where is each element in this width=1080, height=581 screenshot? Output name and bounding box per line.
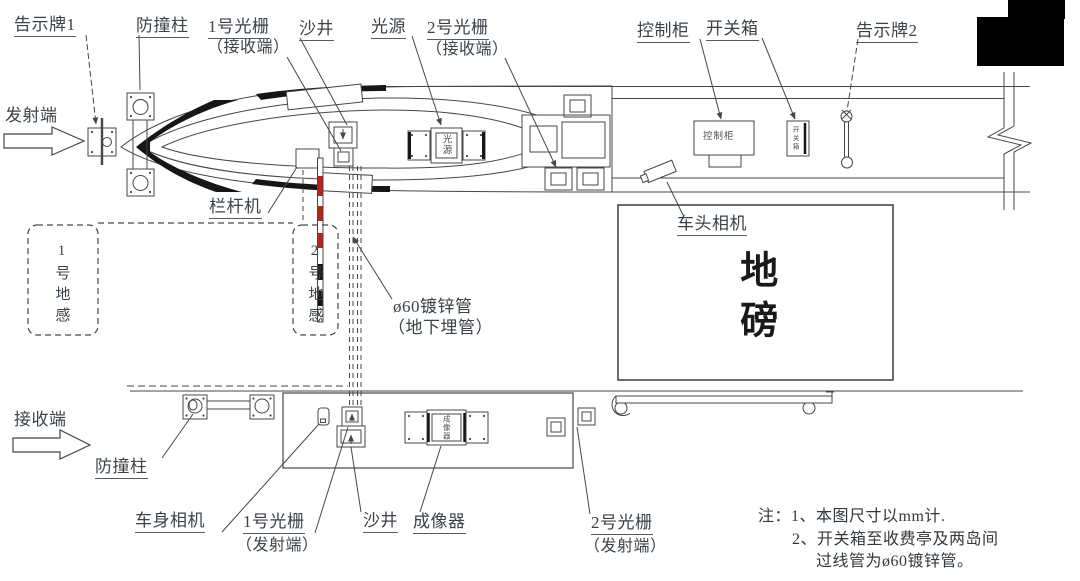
square-pit-bottom xyxy=(577,168,604,190)
grating1-transmitter-symbol xyxy=(342,407,362,426)
transmit-end-arrow xyxy=(4,127,84,155)
manhole-symbol-bottom xyxy=(337,426,365,447)
light-source-box-text: 光源 xyxy=(440,134,450,155)
label-loop2: 2号地感 xyxy=(306,243,323,328)
label-switch-box: 开关箱 xyxy=(706,20,759,41)
control-cabinet-symbol xyxy=(694,121,754,167)
note-line-3: 过线管为ø60镀锌管。 xyxy=(816,553,974,571)
ground-loops xyxy=(28,223,338,335)
square-pit-top xyxy=(564,95,591,117)
switch-box-text: 开关箱 xyxy=(791,126,798,152)
label-transmit-end: 发射端 xyxy=(5,107,58,126)
label-head-camera: 车头相机 xyxy=(677,215,747,236)
control-cabinet-box-text: 控制柜 xyxy=(703,132,735,142)
label-control-cabinet: 控制柜 xyxy=(637,22,690,43)
island-equipment-bay xyxy=(522,95,610,190)
body-camera-symbol xyxy=(318,408,329,425)
label-pipe-sub: （地下埋管） xyxy=(388,319,493,338)
label-manhole-top: 沙井 xyxy=(299,20,334,41)
label-loop1: 1号地感 xyxy=(53,243,70,328)
imager-box-text: 成像器 xyxy=(442,415,450,441)
label-body-camera: 车身相机 xyxy=(135,512,205,533)
redaction-block xyxy=(977,0,1065,66)
grating2-receiver-symbol xyxy=(545,168,572,190)
buried-pipe-lines xyxy=(350,166,362,406)
crash-posts-bottom-symbol xyxy=(183,395,274,419)
label-imager: 成像器 xyxy=(413,513,466,534)
label-grating1-rx-sub: （接收端） xyxy=(207,39,290,57)
label-receive-end: 接收端 xyxy=(14,411,67,430)
notice-board1-symbol xyxy=(88,118,116,165)
label-crash-post-top: 防撞柱 xyxy=(136,17,189,38)
label-barrier-machine: 栏杆机 xyxy=(209,198,262,219)
label-grating2-tx: 2号光栅 xyxy=(591,514,653,535)
diagram-linework xyxy=(0,0,1080,581)
label-manhole-bottom: 沙井 xyxy=(363,512,398,533)
label-grating2-tx-sub: （发射端） xyxy=(584,538,667,556)
label-grating2-rx-sub: （接收端） xyxy=(426,41,509,59)
label-weighbridge: 地磅 xyxy=(733,250,775,350)
grating1-receiver-symbol xyxy=(334,148,353,166)
label-grating1-tx: 1号光栅 xyxy=(243,513,305,534)
label-light-source: 光源 xyxy=(371,18,406,39)
note-line-2: 2、开关箱至收费亭及两岛间 xyxy=(792,531,999,549)
label-notice-board-1: 告示牌1 xyxy=(14,16,76,37)
receive-end-arrow xyxy=(13,430,90,459)
manhole-symbol-top xyxy=(329,122,357,148)
label-grating1-rx: 1号光栅 xyxy=(208,18,270,39)
label-crash-post-bottom: 防撞柱 xyxy=(95,458,148,479)
swing-gate-symbol xyxy=(612,392,834,416)
head-camera-symbol xyxy=(639,160,676,184)
note-line-1: 注：1、本图尺寸以mm计. xyxy=(758,508,945,526)
road-break-symbol xyxy=(988,72,1031,210)
station-layout-drawing: 告示牌1 防撞柱 1号光栅 （接收端） 沙井 光源 2号光栅 （接收端） 控制柜… xyxy=(0,0,1080,581)
notice-board2-symbol xyxy=(841,110,853,168)
label-grating2-rx: 2号光栅 xyxy=(427,19,489,40)
label-pipe: ø60镀锌管 xyxy=(393,298,473,317)
label-grating1-tx-sub: （发射端） xyxy=(236,537,319,555)
label-notice-board-2: 告示牌2 xyxy=(856,22,918,43)
grating2-transmitter-symbol xyxy=(547,408,595,436)
